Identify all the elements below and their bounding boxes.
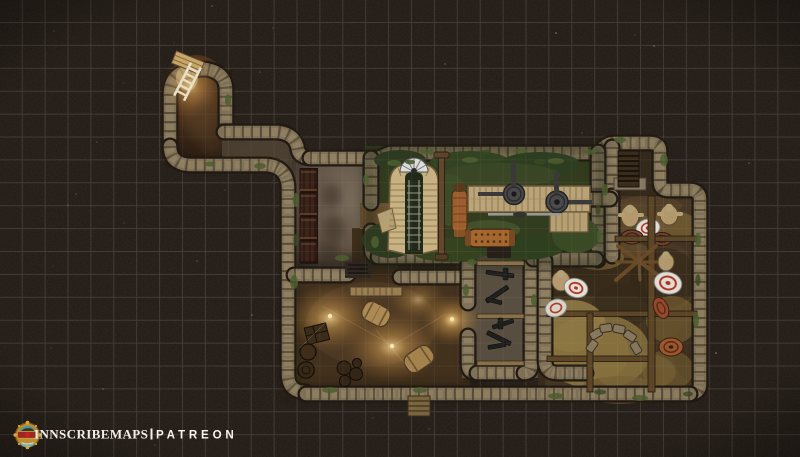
svg-text:PATREON: PATREON — [156, 428, 238, 441]
svg-text:INNSCRIBEMAPS: INNSCRIBEMAPS — [34, 427, 148, 442]
